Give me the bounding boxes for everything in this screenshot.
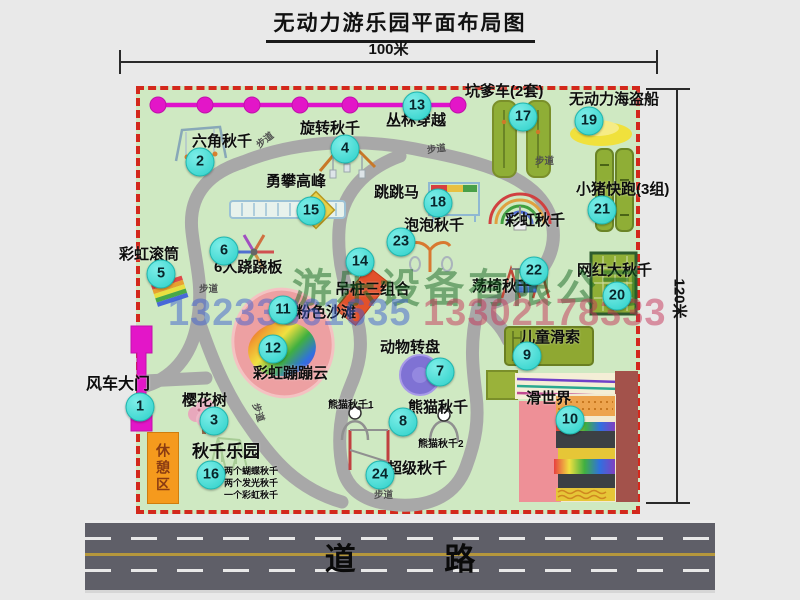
rest-area: 休憩区 (147, 432, 179, 504)
dimension-tick (646, 502, 690, 504)
dimension-width-label: 100米 (120, 38, 657, 59)
road-label: 道 路 (85, 523, 715, 590)
watermark-phone-1: 13233861635 (168, 292, 411, 334)
road: 道 路 (85, 520, 715, 593)
rest-area-label: 休憩区 (153, 443, 173, 494)
playground-layout-page: 无动力游乐园平面布局图 100米 120米 (0, 0, 800, 600)
watermark-phone: 13233861635 13302178333 (168, 292, 667, 335)
dimension-tick (646, 88, 690, 90)
dimension-tick (656, 50, 658, 74)
dimension-height-label: 120米 (670, 269, 691, 329)
dimension-tick (119, 50, 121, 74)
watermark-phone-2: 13302178333 (423, 292, 666, 334)
dimension-width-line (120, 61, 657, 63)
